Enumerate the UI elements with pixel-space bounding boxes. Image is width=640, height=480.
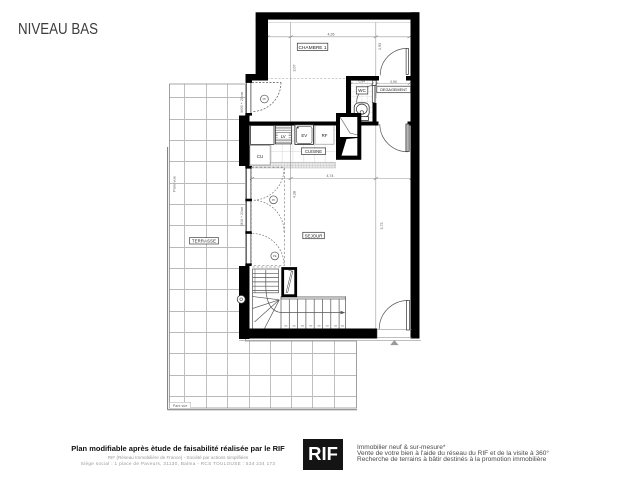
svg-text:TERRASSE: TERRASSE xyxy=(192,239,216,244)
svg-text:CU: CU xyxy=(257,154,263,159)
svg-text:PE: PE xyxy=(273,254,277,258)
svg-text:3,07: 3,07 xyxy=(293,65,297,72)
svg-text:DEGAGEMENT: DEGAGEMENT xyxy=(380,88,408,92)
svg-text:EV: EV xyxy=(301,133,307,138)
svg-text:1,93: 1,93 xyxy=(378,43,382,50)
svg-text:M06 + 20cm: M06 + 20cm xyxy=(240,92,244,112)
svg-text:0,90: 0,90 xyxy=(390,80,397,84)
svg-text:PF: PF xyxy=(272,198,276,202)
svg-text:Pare vue: Pare vue xyxy=(172,175,177,192)
svg-text:WC: WC xyxy=(358,88,366,93)
svg-text:LV: LV xyxy=(281,134,286,139)
svg-text:PF: PF xyxy=(263,97,267,101)
svg-text:3,73: 3,73 xyxy=(380,223,384,230)
svg-text:M06 + 20cm: M06 + 20cm xyxy=(240,207,244,226)
svg-text:4,26: 4,26 xyxy=(328,33,335,37)
svg-text:CHAMBRE 1: CHAMBRE 1 xyxy=(299,45,327,51)
svg-text:4,28: 4,28 xyxy=(293,191,297,198)
svg-text:4,74: 4,74 xyxy=(327,174,334,178)
svg-text:CUISINE: CUISINE xyxy=(305,149,322,154)
svg-text:Pare vue: Pare vue xyxy=(173,404,187,408)
svg-text:SEJOUR: SEJOUR xyxy=(305,233,323,238)
svg-text:RF: RF xyxy=(322,133,328,138)
